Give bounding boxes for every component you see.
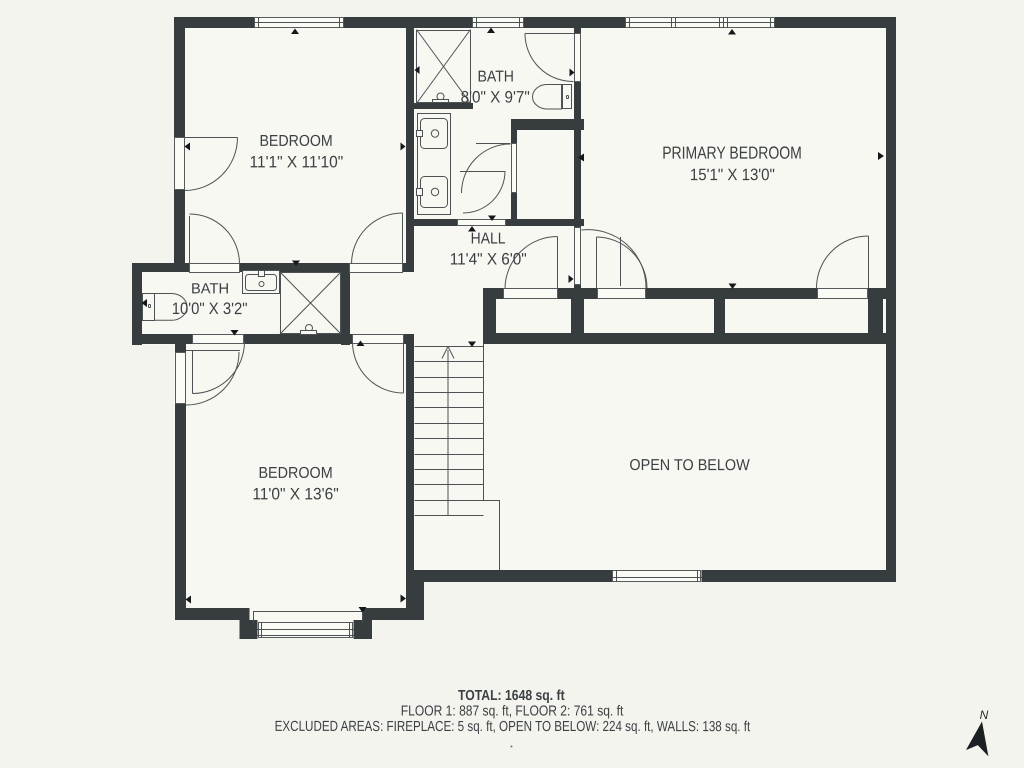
svg-text:TOTAL: 1648 sq. ft: TOTAL: 1648 sq. ft xyxy=(458,688,565,704)
svg-text:15'1" X 13'0": 15'1" X 13'0" xyxy=(690,165,775,184)
svg-text:PRIMARY BEDROOM: PRIMARY BEDROOM xyxy=(662,143,802,163)
svg-text:BATH: BATH xyxy=(191,281,229,297)
svg-text:BEDROOM: BEDROOM xyxy=(258,465,332,482)
svg-text:HALL: HALL xyxy=(471,230,506,247)
svg-text:11'4" X 6'0": 11'4" X 6'0" xyxy=(450,249,527,268)
svg-text:11'1" X 11'10": 11'1" X 11'10" xyxy=(250,152,344,171)
svg-text:8'0" X 9'7": 8'0" X 9'7" xyxy=(461,87,530,106)
svg-text:BEDROOM: BEDROOM xyxy=(259,133,332,150)
svg-text:OPEN TO BELOW: OPEN TO BELOW xyxy=(629,457,749,474)
svg-text:N: N xyxy=(980,708,989,722)
svg-text:11'0" X 13'6": 11'0" X 13'6" xyxy=(252,484,339,503)
svg-text:EXCLUDED AREAS: FIREPLACE: 5 s: EXCLUDED AREAS: FIREPLACE: 5 sq. ft, OPE… xyxy=(275,719,751,735)
svg-text:BATH: BATH xyxy=(477,68,514,85)
svg-text:FLOOR 1: 887 sq. ft, FLOOR 2:: FLOOR 1: 887 sq. ft, FLOOR 2: 761 sq. ft xyxy=(401,703,624,719)
svg-text:10'0" X 3'2": 10'0" X 3'2" xyxy=(172,299,248,318)
